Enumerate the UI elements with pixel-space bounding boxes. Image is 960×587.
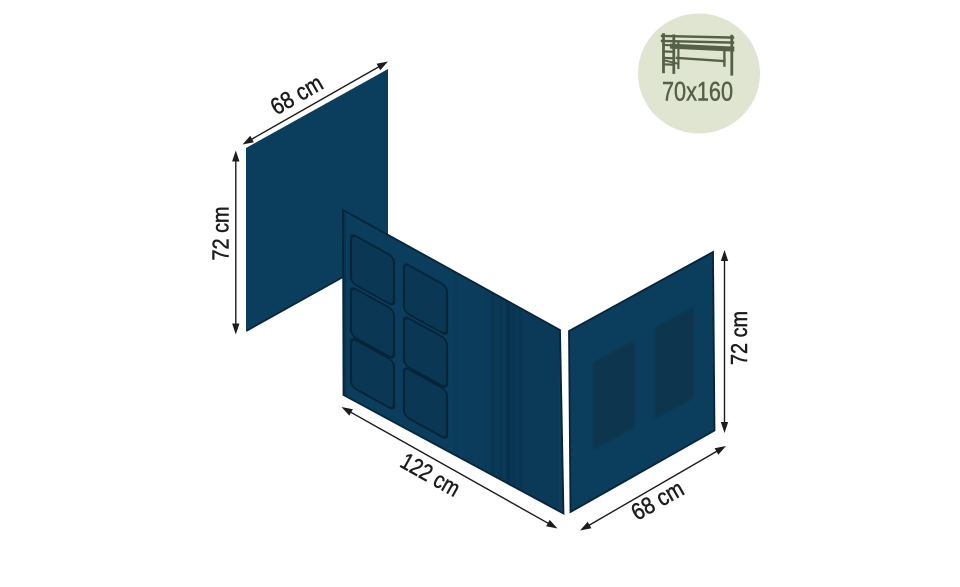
svg-text:70x160: 70x160	[662, 76, 733, 106]
svg-text:72 cm: 72 cm	[726, 311, 752, 365]
svg-text:72 cm: 72 cm	[208, 207, 234, 261]
